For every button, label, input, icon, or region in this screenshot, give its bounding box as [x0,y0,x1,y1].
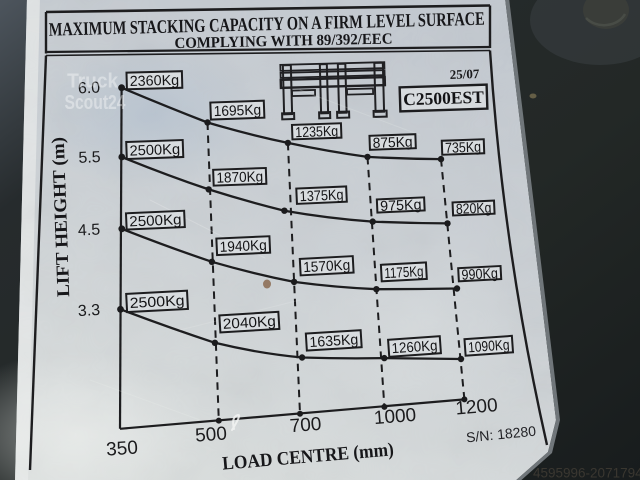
svg-text:1695Kg: 1695Kg [213,102,261,120]
svg-text:2500Kg: 2500Kg [129,293,185,312]
svg-text:2360Kg: 2360Kg [130,73,180,90]
svg-text:1570Kg: 1570Kg [303,258,351,276]
svg-text:820Kg: 820Kg [456,200,492,218]
svg-text:1235Kg: 1235Kg [295,124,339,141]
svg-text:1090Kg: 1090Kg [468,337,511,356]
svg-text:990Kg: 990Kg [461,266,498,284]
svg-text:2500Kg: 2500Kg [129,142,180,160]
svg-text:2040Kg: 2040Kg [222,314,276,333]
svg-text:875Kg: 875Kg [372,135,412,152]
svg-text:1260Kg: 1260Kg [391,338,438,357]
svg-text:975Kg: 975Kg [380,197,422,215]
svg-text:1940Kg: 1940Kg [219,238,267,256]
svg-text:1175Kg: 1175Kg [384,264,424,282]
svg-text:1375Kg: 1375Kg [299,187,344,205]
svg-text:1635Kg: 1635Kg [309,332,359,351]
svg-text:735Kg: 735Kg [445,140,482,157]
svg-text:2500Kg: 2500Kg [129,212,182,230]
svg-text:1870Kg: 1870Kg [216,169,263,187]
